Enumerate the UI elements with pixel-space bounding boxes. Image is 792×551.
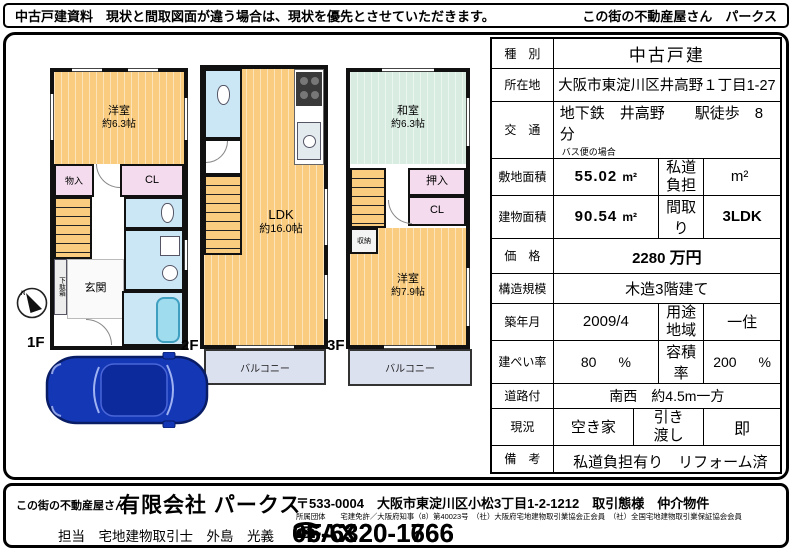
private-road-label: 私道 負担 (659, 158, 704, 195)
spec-value-status: 空き家 (553, 408, 633, 445)
shoe-cabinet-label: 下駄箱 (56, 277, 66, 297)
stairs-1f (54, 197, 92, 259)
footer-company-name: 有限会社 パークス (119, 489, 301, 519)
header-notice-bar: 中古戸建資料 現状と間取図面が違う場合は、現状を優先とさせていただきます。 この… (3, 3, 789, 28)
spec-label: 備 考 (491, 445, 553, 473)
spec-table: 種 別 中古戸建 所在地 大阪市東淀川区井高野１丁目1-27 交 通 地下鉄 井… (490, 37, 782, 474)
closet-label: 物入 (65, 174, 83, 187)
main-panel: 洋室 約6.3帖 物入 CL 下駄箱 (3, 32, 789, 480)
sink-drain (303, 135, 316, 148)
compass-icon: N (15, 286, 49, 320)
stairs-2f (204, 175, 242, 255)
floorplan-3f: 和室 約6.3帖 押入 CL 洋室 約7.9帖 収納 (346, 68, 470, 349)
spec-value-access: 地下鉄 井高野 駅徒歩 8 分 (554, 102, 780, 144)
document-notice: 中古戸建資料 現状と間取図面が違う場合は、現状を優先とさせていただきます。 (15, 6, 495, 25)
balcony-2f: バルコニー (204, 349, 326, 385)
row-road: 道路付 南西 約4.5m一方 (491, 383, 781, 408)
spec-label: 価 格 (491, 238, 553, 273)
spec-label: 築年月 (491, 303, 553, 340)
washroom-1f (124, 229, 184, 291)
row-remarks: 備 考 私道負担有り リフォーム済 (491, 445, 781, 473)
footer-tagline: この街の不動産屋さん (16, 497, 126, 513)
madori-value: 3LDK (704, 195, 781, 238)
entrance-label: 玄関 (85, 282, 107, 296)
zoning-label: 用途 地域 (659, 303, 704, 340)
sink-icon (162, 265, 178, 281)
footer-staff: 担当 宅地建物取引士 外島 光義 (58, 525, 274, 545)
window (72, 68, 102, 72)
row-land-area: 敷地面積 55.02 m² 私道 負担 m² (491, 158, 781, 195)
kitchen-sink-icon (297, 122, 321, 160)
fax-number: 06-6320-1766 (292, 518, 454, 549)
handover-label: 引き 渡し (633, 408, 703, 445)
car-icon (45, 352, 210, 428)
room-name: 洋室 (108, 105, 130, 119)
price-number: 2280 (632, 250, 665, 267)
header-brand: この街の不動産屋さん パークス (582, 6, 777, 25)
footer-bar: この街の不動産屋さん 有限会社 パークス 〒533-0004 大阪市東淀川区小松… (3, 483, 789, 548)
window (128, 68, 158, 72)
toilet-icon (217, 85, 230, 105)
toilet-icon (161, 203, 174, 223)
balcony-label: バルコニー (385, 360, 435, 375)
room-size: 約6.3帖 (391, 119, 425, 132)
row-coverage: 建ぺい率 80 % 容積率 200 % (491, 340, 781, 383)
room-name: LDK (268, 207, 293, 223)
row-building-area: 建物面積 90.54 m² 間取り 3LDK (491, 195, 781, 238)
spec-value-land: 55.02 m² (553, 158, 658, 195)
closet-label: CL (430, 204, 444, 218)
floorplan-1f: 洋室 約6.3帖 物入 CL 下駄箱 (50, 68, 188, 350)
closet-label: CL (145, 174, 159, 188)
toilet-room-1f (124, 197, 184, 229)
balcony-3f: バルコニー (348, 349, 472, 386)
far-unit: % (759, 354, 771, 370)
stairs-3f (350, 168, 386, 228)
room-size: 約6.3帖 (102, 119, 136, 132)
shoe-cabinet: 下駄箱 (54, 259, 67, 315)
spec-value-price: 2280 万円 (553, 238, 781, 273)
row-status: 現況 空き家 引き 渡し 即 (491, 408, 781, 445)
coverage-number: 80 (581, 354, 597, 370)
window (324, 275, 328, 319)
spec-value-remarks: 私道負担有り リフォーム済 (553, 445, 781, 473)
compass-north-label: N (21, 291, 25, 297)
far-label: 容積率 (659, 340, 704, 383)
spec-label: 建ぺい率 (491, 340, 553, 383)
window (324, 189, 328, 245)
door-arc (388, 200, 412, 224)
land-area-number: 55.02 (575, 168, 618, 185)
window (466, 268, 470, 326)
floor-label-3f: 3F (327, 337, 345, 354)
spec-label: 種 別 (491, 38, 553, 68)
spec-access-note: バス便の場合 (554, 145, 780, 158)
madori-label: 間取り (659, 195, 704, 238)
closet-cl-3f: CL (408, 196, 466, 226)
closet-label: 押入 (426, 175, 448, 189)
closet-cl-1f: CL (120, 164, 184, 197)
window (184, 98, 188, 140)
row-location: 所在地 大阪市東淀川区井高野１丁目1-27 (491, 68, 781, 101)
spec-value-location: 大阪市東淀川区井高野１丁目1-27 (553, 68, 781, 101)
handover-value: 即 (704, 408, 781, 445)
far-number: 200 (713, 354, 736, 370)
entrance-genkan: 玄関 (67, 259, 124, 319)
kitchen-counter (294, 69, 324, 165)
price-unit: 万円 (670, 250, 702, 267)
washer-icon (160, 236, 180, 256)
door-arc (96, 164, 120, 188)
property-flyer: 中古戸建資料 現状と間取図面が違う場合は、現状を優先とさせていただきます。 この… (0, 0, 792, 551)
spec-value-building: 90.54 m² (553, 195, 658, 238)
toilet-room-2f (204, 69, 242, 139)
spec-label: 構造規模 (491, 273, 553, 303)
spec-value-structure: 木造3階建て (553, 273, 781, 303)
floorplan-2f: LDK 約16.0帖 (200, 65, 328, 349)
closet-oshiire-3f: 押入 (408, 168, 466, 196)
window (466, 98, 470, 146)
bathroom-1f (122, 291, 184, 346)
balcony-label: バルコニー (240, 360, 290, 375)
door-arc (86, 319, 112, 345)
storage-label: 収納 (357, 236, 371, 246)
spec-label: 建物面積 (491, 195, 553, 238)
spec-label: 交 通 (491, 101, 553, 158)
floor-label-1f: 1F (27, 334, 45, 351)
room-name: 和室 (397, 105, 419, 119)
footer-address: 〒533-0004 大阪市東淀川区小松3丁目1-2-1212 取引態様 仲介物件 (296, 493, 709, 512)
spec-label: 敷地面積 (491, 158, 553, 195)
zoning-value: 一住 (704, 303, 781, 340)
room-yoshitsu-1f: 洋室 約6.3帖 (54, 72, 184, 164)
stove-icon (296, 72, 322, 106)
room-size: 約7.9帖 (391, 287, 425, 300)
land-area-unit: m² (622, 170, 637, 184)
row-type: 種 別 中古戸建 (491, 38, 781, 68)
row-price: 価 格 2280 万円 (491, 238, 781, 273)
storage-shuno-3f: 収納 (350, 228, 378, 254)
room-washitsu-3f: 和室 約6.3帖 (350, 72, 466, 164)
spec-label: 所在地 (491, 68, 553, 101)
window (50, 94, 54, 140)
window (184, 240, 188, 270)
row-access: 交 通 地下鉄 井高野 駅徒歩 8 分 バス便の場合 (491, 101, 781, 158)
bathtub-icon (156, 297, 180, 343)
window (382, 68, 434, 72)
spec-label: 現況 (491, 408, 553, 445)
closet-monoire-1f: 物入 (54, 164, 94, 197)
private-road-unit: m² (704, 158, 781, 195)
building-area-number: 90.54 (575, 208, 618, 225)
spec-value-built: 2009/4 (553, 303, 658, 340)
room-size: 約16.0帖 (259, 223, 302, 237)
row-structure: 構造規模 木造3階建て (491, 273, 781, 303)
spec-value-type: 中古戸建 (553, 38, 781, 68)
row-built: 築年月 2009/4 用途 地域 一住 (491, 303, 781, 340)
spec-label: 道路付 (491, 383, 553, 408)
coverage-unit: % (618, 354, 630, 370)
building-area-unit: m² (622, 210, 637, 224)
spec-value-road: 南西 約4.5m一方 (553, 383, 781, 408)
room-name: 洋室 (397, 273, 419, 287)
